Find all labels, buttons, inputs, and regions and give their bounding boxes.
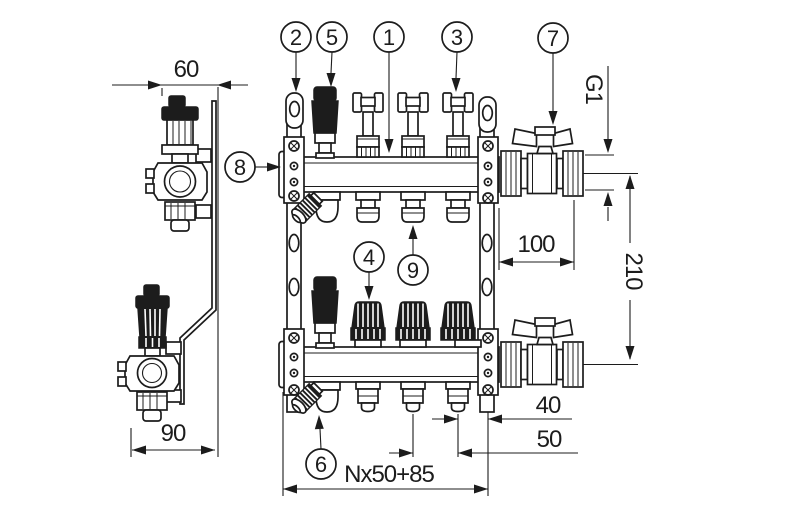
dim-label-50: 50	[537, 426, 562, 453]
outlet-coupling-bottom-1	[356, 382, 380, 412]
drawing-canvas: 60 90 100 G1	[0, 0, 792, 522]
handwheel-valve-3	[443, 93, 473, 157]
callout-6-label: 6	[315, 452, 327, 477]
outlet-coupling-bottom-3	[446, 382, 470, 412]
callout-5-air-vent: 5	[317, 22, 347, 87]
dimension-90: 90	[131, 420, 215, 457]
callout-3-handwheel: 3	[442, 22, 472, 92]
callout-6-drain: 6	[306, 415, 336, 479]
dimension-210: 210	[620, 175, 647, 360]
callout-5-label: 5	[326, 25, 338, 50]
callout-1-manifold: 1	[374, 22, 404, 153]
handwheel-valve-1	[353, 93, 383, 157]
outlet-coupling-top-3	[446, 192, 470, 222]
callout-8-end-plug: 8	[225, 152, 281, 182]
handwheel-valve-2	[398, 93, 428, 157]
callout-3-label: 3	[451, 25, 463, 50]
air-vent-top	[312, 87, 338, 158]
bracket-clip	[166, 342, 181, 354]
outlet-coupling-top-1	[356, 192, 380, 222]
mounting-rail-left	[284, 93, 304, 412]
callout-9-outlet: 9	[398, 225, 428, 285]
front-view	[279, 87, 638, 416]
valve-handle-wing	[513, 129, 537, 147]
dim-label-total-length: Nx50+85	[344, 461, 434, 488]
thermostatic-insert-2	[396, 302, 430, 347]
dimension-100: 100	[499, 200, 574, 270]
dim-label-210: 210	[620, 252, 647, 290]
dim-label-40: 40	[536, 392, 561, 419]
callout-7-label: 7	[547, 26, 559, 51]
bracket-clip	[196, 205, 211, 218]
callout-4-thermostatic: 4	[354, 242, 384, 300]
dimension-60: 60	[112, 56, 248, 96]
outlet-coupling-bottom-2	[401, 382, 425, 412]
callout-2-label: 2	[290, 25, 302, 50]
callout-4-label: 4	[363, 245, 375, 270]
valve-handle-wing	[554, 320, 573, 338]
valve-handle-wing	[554, 129, 573, 147]
thermostatic-insert-3	[441, 302, 481, 347]
ball-valve-top	[501, 127, 638, 196]
callout-8-label: 8	[234, 155, 246, 180]
dim-label-60: 60	[174, 56, 199, 83]
mounting-rail-right	[478, 97, 498, 412]
side-view	[118, 87, 218, 457]
outlet-coupling-top-2	[401, 192, 425, 222]
bracket-hole	[290, 102, 300, 117]
dim-label-90: 90	[161, 420, 186, 447]
thermostatic-insert-1	[351, 302, 385, 347]
callout-2-bracket: 2	[281, 22, 311, 92]
bracket-hole	[483, 106, 493, 121]
dim-label-g1: G1	[580, 74, 607, 105]
ball-valve-bottom	[501, 318, 638, 387]
dim-label-100: 100	[517, 231, 555, 258]
callout-1-label: 1	[383, 25, 395, 50]
technical-drawing-manifold: 60 90 100 G1	[0, 0, 792, 522]
dimension-50: 50	[389, 414, 578, 458]
valve-handle-wing	[513, 320, 537, 338]
dimension-g1: G1	[580, 66, 614, 221]
callout-7-ball-valve: 7	[538, 23, 568, 125]
callout-9-label: 9	[407, 258, 419, 283]
air-vent-bottom	[312, 277, 338, 348]
